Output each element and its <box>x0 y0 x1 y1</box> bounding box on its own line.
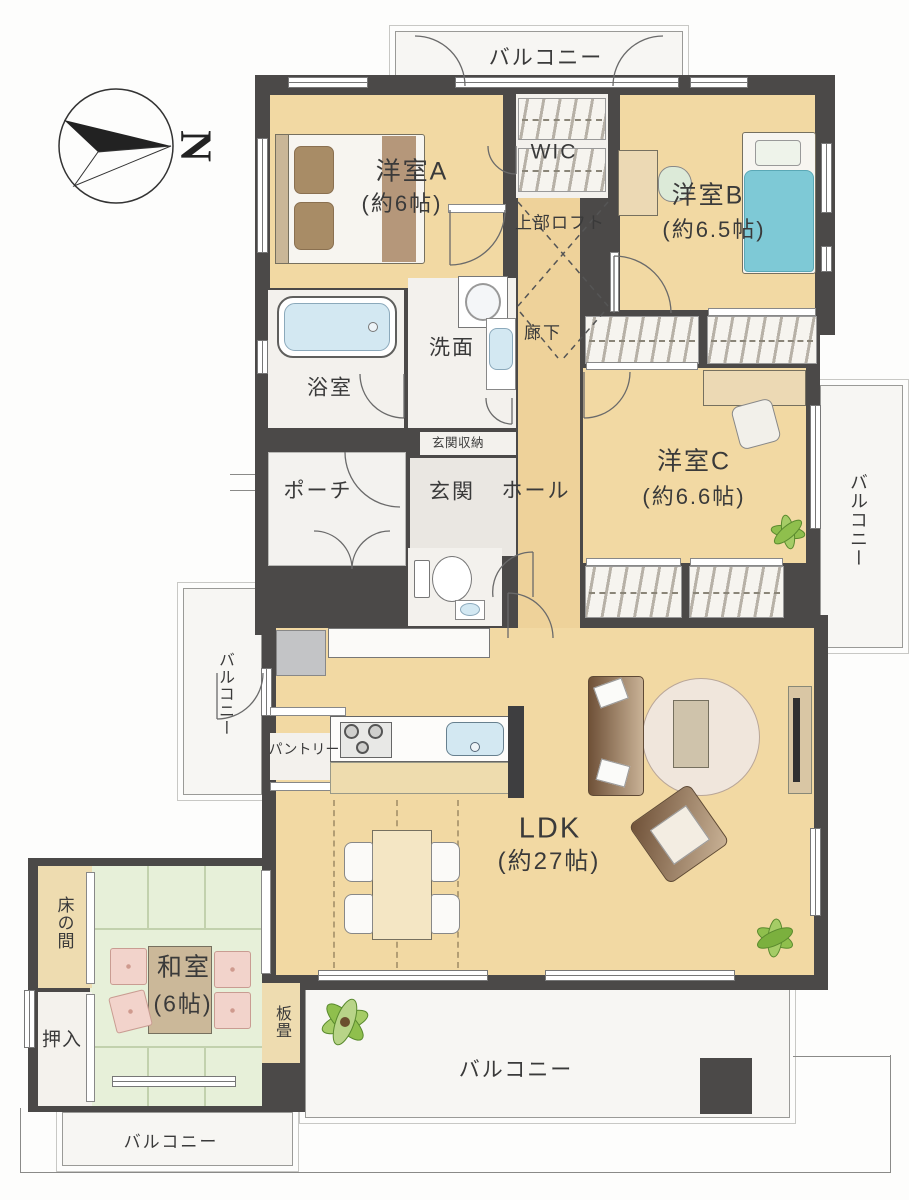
dining-chair <box>344 894 373 934</box>
window-balcony-door <box>112 1076 236 1087</box>
window <box>690 77 748 88</box>
stove-burner <box>356 741 369 754</box>
floor-dashed-line <box>333 800 335 968</box>
toilet-bowl <box>432 556 472 602</box>
fusuma-oshiire <box>86 994 95 1102</box>
label-itadatami: 板畳 <box>273 1005 289 1039</box>
dining-chair <box>431 894 460 934</box>
kitchen-cupboard <box>328 628 490 658</box>
balcony-pillar <box>700 1058 752 1114</box>
label-tokonoma: 床の間 <box>56 896 73 950</box>
closet-western-c2 <box>689 566 784 618</box>
floor-cushion <box>110 948 147 985</box>
kitchen-faucet <box>470 742 480 752</box>
tatami-line <box>204 866 206 928</box>
closet-door-track <box>586 558 681 566</box>
dining-chair <box>344 842 373 882</box>
label-balcony-left: バルコニー <box>216 652 232 737</box>
closet-door-track <box>708 308 816 316</box>
washing-machine-drum <box>465 283 501 321</box>
label-wic: WIC <box>531 142 578 163</box>
tv <box>793 698 800 782</box>
window-balcony-door <box>455 77 679 88</box>
label-bathroom: 浴室 <box>307 378 353 399</box>
floor-cushion <box>214 951 251 988</box>
kitchen-end-panel <box>508 706 524 798</box>
label-western-c-name: 洋室C <box>657 450 731 475</box>
room-porch <box>268 452 406 566</box>
door-gap <box>448 204 506 213</box>
closet-western-b2 <box>707 316 817 364</box>
label-western-b-name: 洋室B <box>672 184 745 209</box>
label-porch: ポーチ <box>284 481 353 502</box>
closet-western-b <box>585 316 699 364</box>
window <box>257 340 268 374</box>
sliding-door-washitsu <box>261 870 271 974</box>
label-washroom: 洗面 <box>429 338 475 359</box>
window-balcony-door <box>810 405 821 529</box>
boundary-line <box>20 1172 891 1173</box>
tatami-line <box>90 1046 262 1048</box>
pantry-door-track <box>270 707 346 716</box>
window <box>24 990 35 1048</box>
refrigerator <box>276 630 326 676</box>
tatami-line <box>90 928 262 930</box>
dining-chair <box>431 842 460 882</box>
closet-western-c <box>585 566 682 618</box>
boundary-line <box>20 1108 21 1173</box>
label-loft: 上部ロフト <box>515 215 605 232</box>
coffee-table <box>673 700 709 768</box>
room-corridor-hall <box>518 198 580 650</box>
room-entrance <box>410 458 516 556</box>
desk <box>618 150 658 216</box>
floor-cushion <box>214 992 251 1029</box>
label-balcony-top: バルコニー <box>489 48 604 69</box>
dining-table <box>372 830 432 940</box>
window <box>821 143 832 213</box>
window <box>288 77 368 88</box>
kitchen-island-base <box>330 762 524 794</box>
window <box>257 138 268 253</box>
floor-plan: N <box>0 0 909 1200</box>
label-entrance: 玄関 <box>429 482 475 503</box>
stove-burner <box>368 724 383 739</box>
window-balcony-door <box>545 970 735 981</box>
window <box>810 828 821 916</box>
tv-board <box>788 686 812 794</box>
pillow <box>294 146 334 194</box>
closet-door-track <box>690 558 783 566</box>
closet-door-track <box>586 362 698 370</box>
label-corridor: 廊下 <box>524 325 562 342</box>
label-oshiire: 押入 <box>42 1031 82 1050</box>
label-entrance-storage: 玄関収納 <box>432 437 484 450</box>
label-washitsu-name: 和室 <box>157 956 211 981</box>
label-ldk-size: (約27帖) <box>498 850 601 874</box>
label-hall: ホール <box>502 481 571 502</box>
label-western-b-size: (約6.5帖) <box>662 219 765 241</box>
label-ldk-name: LDK <box>519 815 581 844</box>
toilet-sink-basin <box>460 603 480 616</box>
tatami-line <box>147 866 149 928</box>
boundary-line <box>793 1056 891 1057</box>
door-gap <box>610 252 619 312</box>
label-western-c-size: (約6.6帖) <box>642 486 745 508</box>
washstand-basin <box>489 328 513 370</box>
bed-headboard <box>275 134 289 264</box>
pillow <box>755 140 801 166</box>
window-balcony-door <box>318 970 488 981</box>
fusuma-tokonoma <box>86 872 95 984</box>
wic-hanger-rack <box>518 98 606 140</box>
bathtub-drain <box>368 322 378 332</box>
label-balcony-bottom: バルコニー <box>459 1060 574 1081</box>
label-western-a-size: (約6帖) <box>362 193 443 215</box>
window <box>821 246 832 272</box>
floor-dashed-line <box>457 800 459 968</box>
label-western-a-name: 洋室A <box>376 160 449 185</box>
compass-n-label: N <box>172 130 221 162</box>
label-washitsu-size: (6帖) <box>153 993 212 1016</box>
label-balcony-bottom-left: バルコニー <box>124 1134 219 1151</box>
label-pantry: パントリー <box>269 742 340 756</box>
label-balcony-right: バルコニー <box>849 473 867 568</box>
boundary-line <box>890 1055 891 1173</box>
stove-burner <box>344 724 359 739</box>
pillow <box>294 202 334 250</box>
toilet-tank <box>414 560 430 598</box>
compass-icon: N <box>59 89 221 203</box>
